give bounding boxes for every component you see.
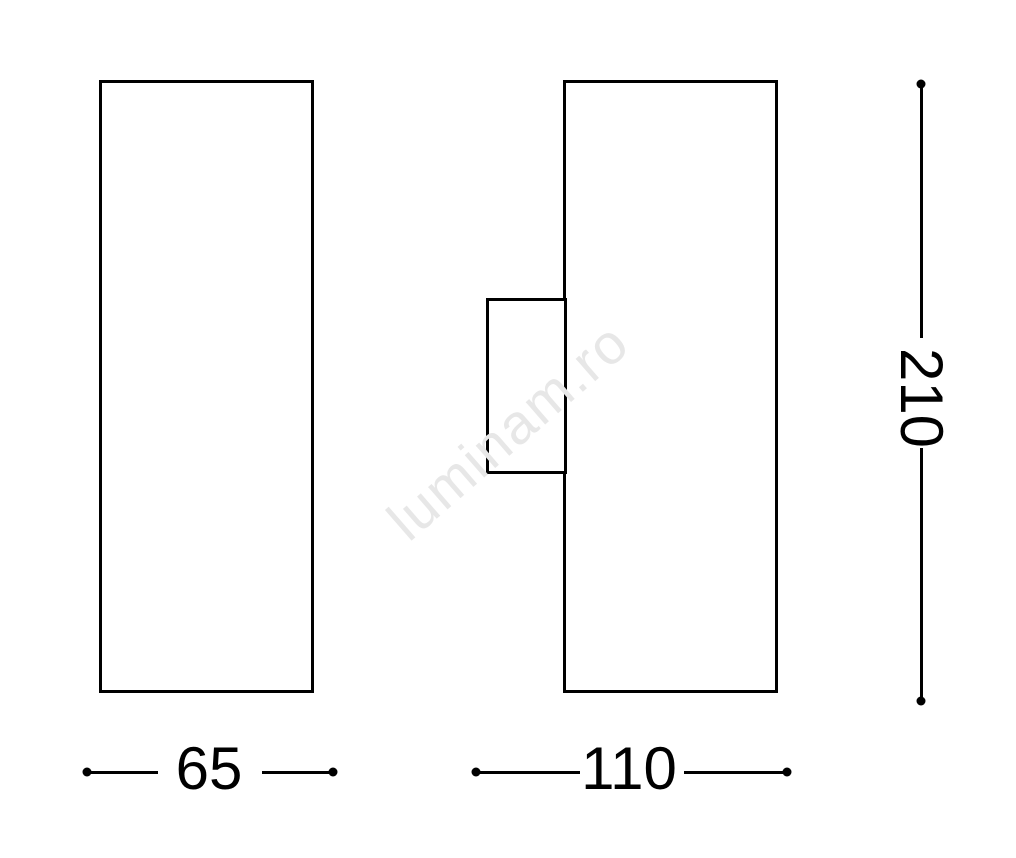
dimension-drawing-canvas: luminam.ro 65 110 210 [0, 0, 1016, 858]
dim-front-width-line-left [90, 771, 158, 774]
dim-height-line-top [920, 87, 923, 338]
dim-side-depth-line-right [684, 771, 786, 774]
dim-front-width-label: 65 [176, 739, 243, 799]
dim-front-width-dot-right [329, 768, 338, 777]
dim-side-depth-line-left [479, 771, 580, 774]
dim-side-depth-dot-right [783, 768, 792, 777]
dim-side-depth-label: 110 [581, 739, 677, 799]
dim-height-line-bottom [920, 448, 923, 698]
dim-front-width-line-right [262, 771, 330, 774]
front-view-rectangle [99, 80, 314, 693]
dim-height-label: 210 [891, 348, 951, 448]
mount-bracket-rectangle [486, 298, 567, 474]
dim-height-dot-bottom [917, 697, 926, 706]
side-view-rectangle [563, 80, 778, 693]
